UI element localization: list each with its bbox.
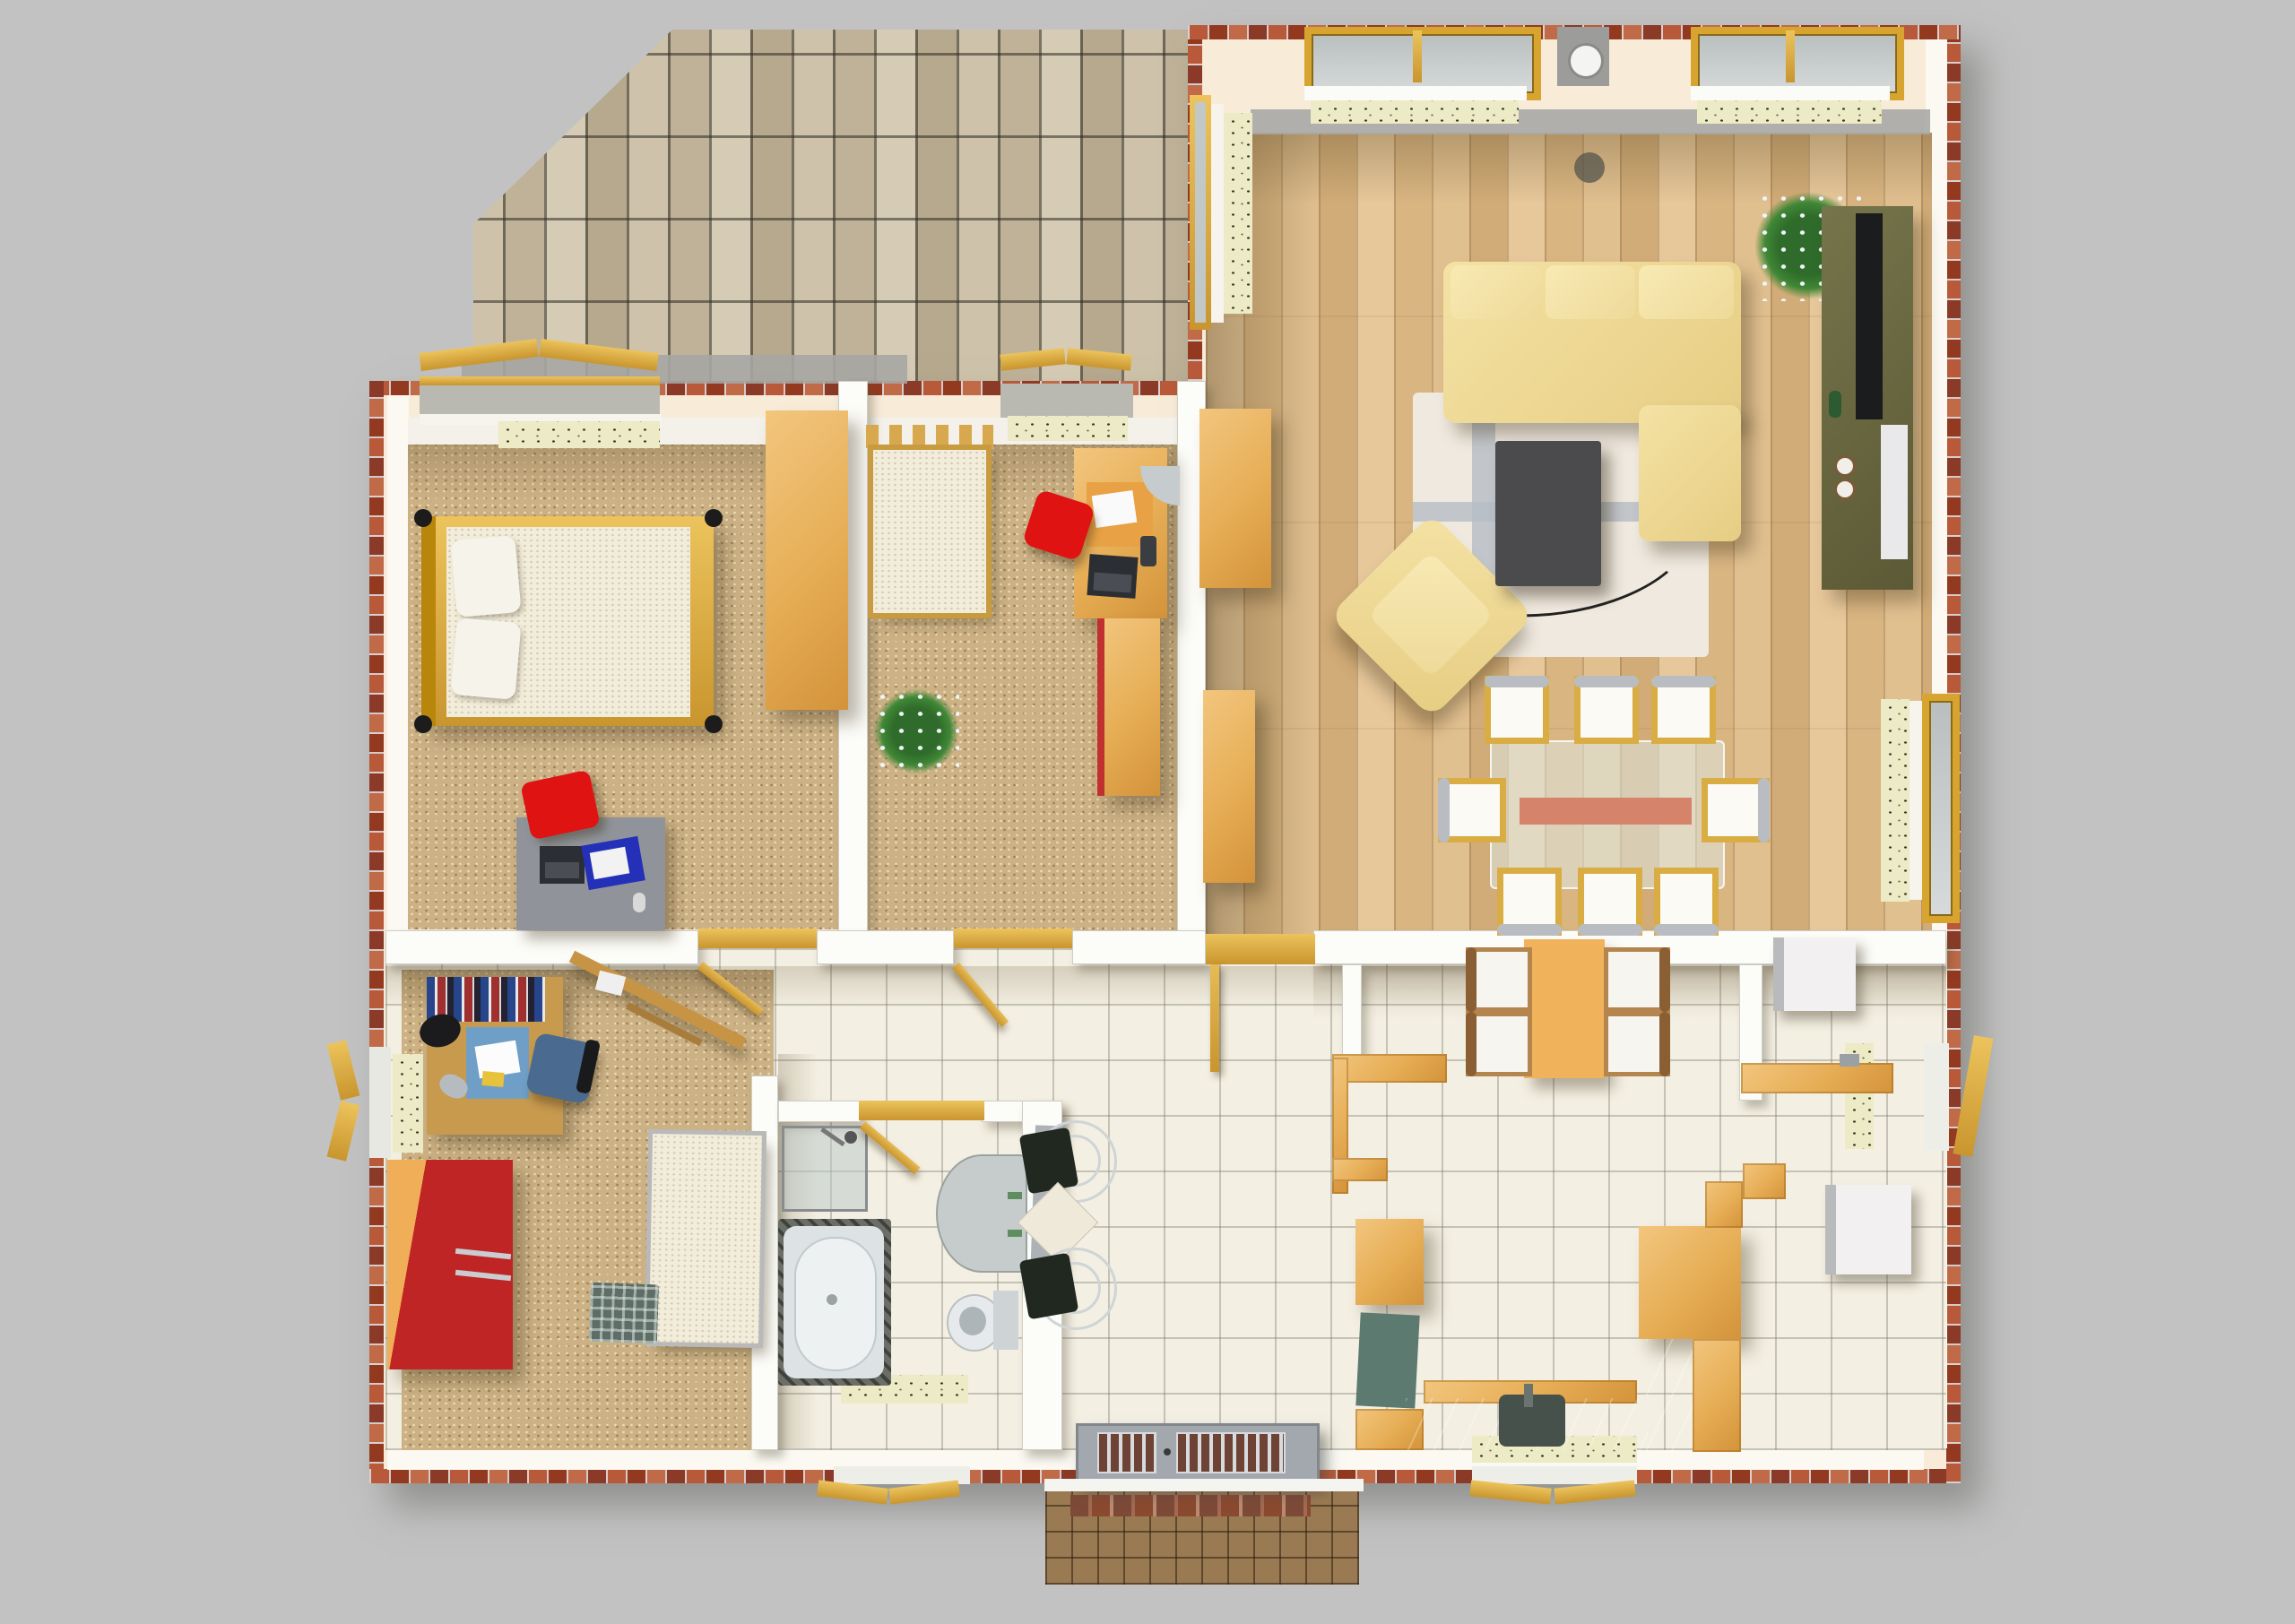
- tv-unit-bottle: [1829, 391, 1841, 418]
- dining-chair-bottom-1: [1497, 868, 1562, 936]
- living-top-window-1-stone-sill: [1311, 100, 1519, 124]
- entry-threshold: [1044, 1479, 1364, 1491]
- hall-wardrobe-a: [1199, 409, 1271, 588]
- bed-knob-4: [705, 715, 723, 733]
- tv-screen: [1856, 213, 1883, 419]
- office-red-cabinet: [387, 1160, 513, 1369]
- living-right-window-frame: [1922, 694, 1960, 923]
- coffee-table: [1495, 441, 1601, 586]
- office-note-yellow: [481, 1071, 504, 1087]
- dining-chair-top-1: [1485, 676, 1549, 744]
- nook-chair-3: [1604, 947, 1670, 1012]
- kitchen-right-marble: [1646, 1339, 1693, 1452]
- nook-chair-4: [1604, 1012, 1670, 1076]
- dining-chair-top-2: [1574, 676, 1639, 744]
- utility-appliance-1: [1773, 937, 1856, 1011]
- nook-chair-2: [1466, 1012, 1532, 1076]
- living-top-window-1-mullion: [1413, 30, 1422, 82]
- hall-chair-1-seat: [1019, 1127, 1079, 1195]
- kids-window-opening: [1000, 384, 1133, 418]
- lintel-bath-door: [859, 1101, 984, 1120]
- entry-door-handle: [1164, 1448, 1171, 1456]
- living-right-window-stone-sill: [1881, 699, 1910, 902]
- bedroom-wardrobe: [766, 410, 848, 710]
- dining-table-runner: [1520, 798, 1692, 825]
- kitchen-right-tall: [1693, 1339, 1741, 1452]
- bed-knob-1: [414, 509, 432, 527]
- bedroom-laptop-keys: [545, 862, 579, 878]
- living-left-window-innersill: [1211, 104, 1224, 323]
- porch-brick-step: [1070, 1495, 1311, 1516]
- kids-laptop-keys: [1093, 573, 1131, 593]
- wall-hall-kitchen-stub: [1342, 964, 1362, 1063]
- bath-faucet-2: [1008, 1230, 1022, 1237]
- kids-bed-mattress: [873, 450, 986, 613]
- lintel-kids-door: [954, 929, 1072, 948]
- utility-appliance-2: [1825, 1185, 1911, 1274]
- living-left-window-glass: [1195, 102, 1206, 323]
- kitchen-faucet: [1524, 1384, 1533, 1407]
- bedroom-mouse: [633, 893, 645, 912]
- wall-mid-b: [817, 930, 954, 964]
- living-top-window-2-innersill: [1691, 86, 1890, 100]
- toilet-bowl-inner: [959, 1307, 986, 1335]
- kitchen-wall-shelf: [1705, 1181, 1743, 1228]
- toilet-tank: [993, 1291, 1018, 1350]
- office-window-sash-top: [327, 1040, 360, 1100]
- utility-desk-object: [1840, 1054, 1859, 1067]
- bed-knob-2: [705, 509, 723, 527]
- floor-plan-canvas: [0, 0, 2295, 1624]
- living-top-window-2-mullion: [1786, 30, 1795, 82]
- bath-sink-mirror: [936, 1154, 1027, 1273]
- bathtub-drain: [827, 1294, 837, 1305]
- wall-mid-c: [1072, 930, 1206, 964]
- office-window-sash-bottom: [327, 1101, 360, 1161]
- hall-counter-lower-shelf: [1332, 1158, 1388, 1181]
- entry-door-grille-1: [1097, 1432, 1156, 1473]
- dining-chair-right: [1702, 778, 1770, 842]
- office-window-stone-sill: [393, 1054, 423, 1153]
- living-top-window-1-innersill: [1304, 86, 1527, 100]
- dining-chair-left: [1438, 778, 1506, 842]
- wall-bath-north-a: [778, 1101, 861, 1122]
- wall-mid-a: [385, 930, 698, 964]
- bedroom-pillow-2: [450, 618, 521, 700]
- kids-window-stone-sill: [1008, 416, 1128, 441]
- kids-phone: [1140, 536, 1156, 566]
- living-right-window-innersill: [1910, 701, 1922, 900]
- sofa-cushion-3: [1639, 265, 1734, 319]
- bedroom-window-beam: [420, 376, 660, 385]
- kids-sideboard-red-edge: [1097, 618, 1104, 796]
- hall-wardrobe-b: [1203, 690, 1255, 883]
- utility-shelf: [1743, 1163, 1786, 1199]
- bath-faucet-1: [1008, 1192, 1022, 1199]
- shower-head: [844, 1131, 857, 1144]
- sofa-cushion-2: [1546, 265, 1635, 319]
- kids-desk-paper: [1092, 490, 1138, 528]
- brick-left-wall: [369, 381, 384, 1483]
- lintel-bedroom-door: [698, 929, 817, 948]
- nook-chair-1: [1466, 947, 1532, 1012]
- bedroom-window-opening: [420, 385, 660, 418]
- guest-bed: [649, 1134, 762, 1343]
- wall-lamp-shade: [1568, 43, 1604, 79]
- kitchen-oven-teal: [1355, 1312, 1419, 1408]
- tv-unit-shelf: [1881, 425, 1908, 559]
- tv-unit-cup-2: [1834, 479, 1856, 500]
- bedroom-window-stone-sill: [498, 421, 660, 448]
- office-basket: [589, 1283, 659, 1344]
- living-top-window-2-stone-sill: [1697, 100, 1882, 124]
- living-floor-spot: [1574, 152, 1605, 183]
- nook-table: [1524, 939, 1605, 1078]
- kids-sideboard: [1097, 618, 1160, 796]
- kitchen-left-column-upper: [1355, 1219, 1424, 1305]
- sofa-chaise: [1639, 405, 1741, 541]
- entry-door-grille-2: [1176, 1432, 1286, 1473]
- sofa-cushion-1: [1451, 265, 1542, 319]
- utility-wall-desk: [1741, 1063, 1893, 1093]
- kids-plant: [873, 688, 959, 774]
- bed-knob-3: [414, 715, 432, 733]
- bathtub-inner: [794, 1237, 877, 1371]
- bedroom-headboard: [421, 516, 436, 726]
- terrace-paving: [462, 25, 1219, 385]
- bedroom-pillow-1: [450, 535, 521, 618]
- door-leaf-living-hall: [1210, 964, 1219, 1072]
- threshold-living-hall: [1206, 934, 1315, 964]
- utility-window-opening: [1924, 1043, 1949, 1151]
- kitchen-right-upper: [1639, 1226, 1741, 1339]
- dining-chair-top-3: [1651, 676, 1716, 744]
- dining-chair-bottom-2: [1578, 868, 1642, 936]
- hall-chair-2-seat: [1019, 1253, 1079, 1320]
- kids-bed-headboard: [866, 425, 993, 448]
- dining-chair-bottom-3: [1654, 868, 1719, 936]
- hall-counter: [1332, 1054, 1447, 1083]
- office-window-opening: [369, 1047, 391, 1158]
- living-left-window-stone-sill: [1224, 113, 1252, 314]
- tv-unit-cup-1: [1834, 455, 1856, 477]
